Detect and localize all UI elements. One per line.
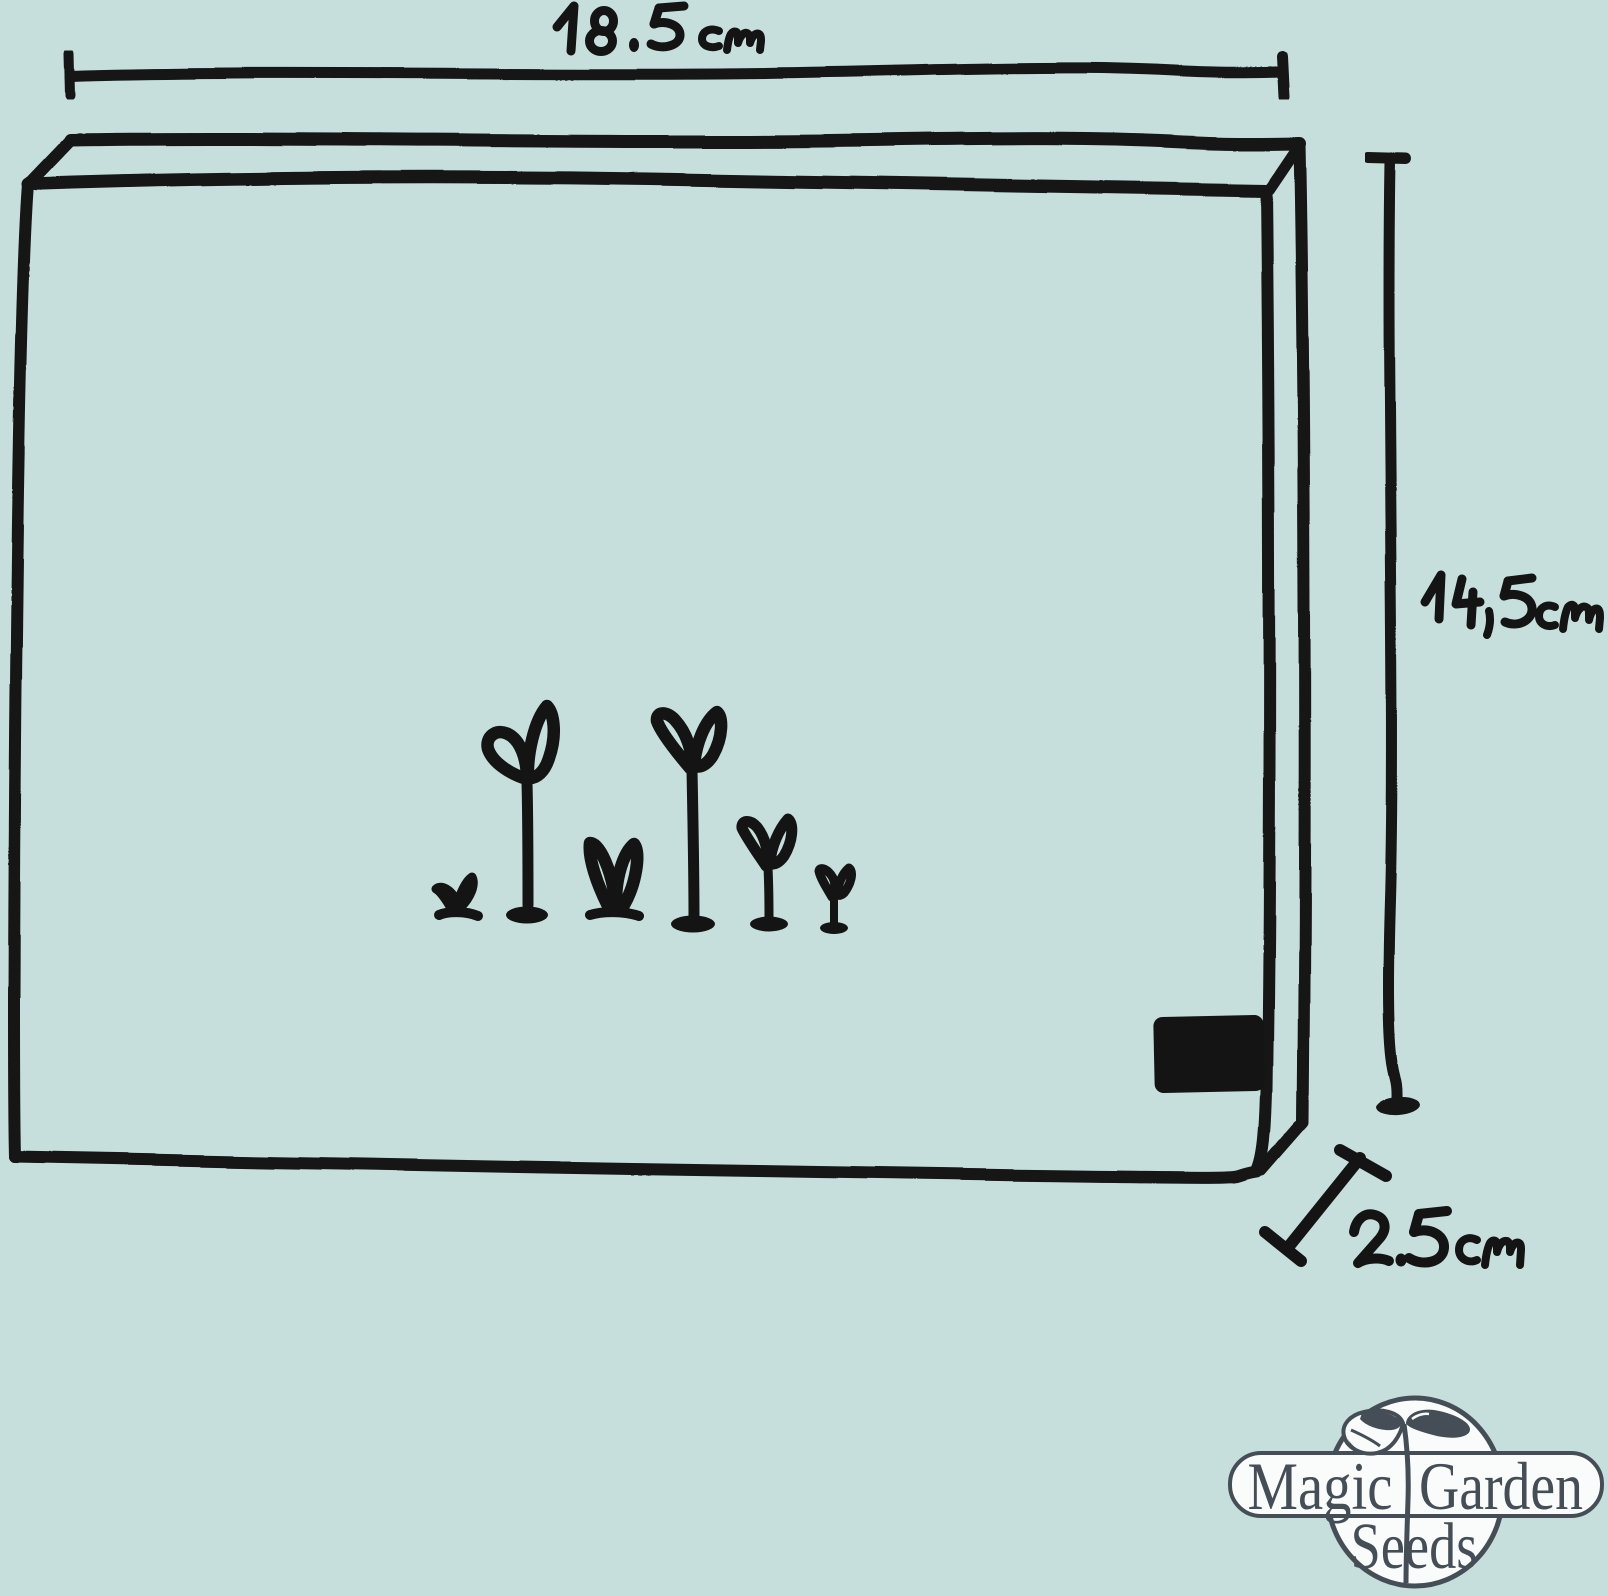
svg-text:Seeds: Seeds bbox=[1351, 1510, 1478, 1583]
